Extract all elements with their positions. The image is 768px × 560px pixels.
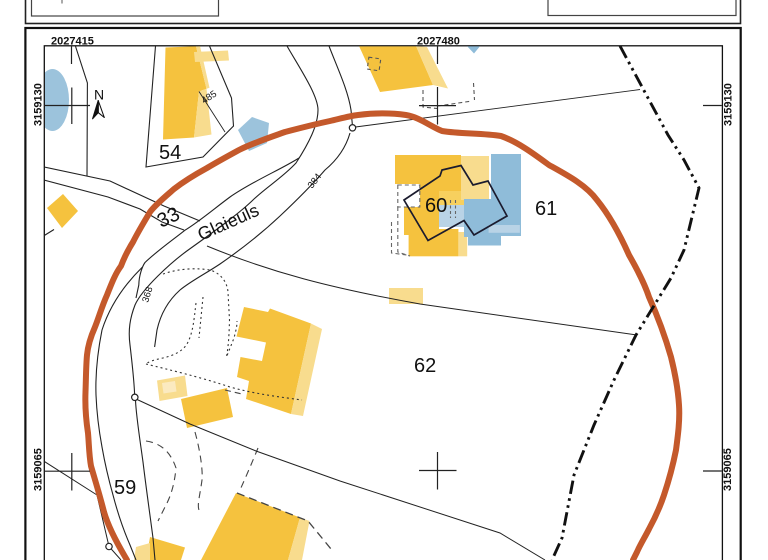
svg-text:3159065: 3159065 — [722, 448, 734, 491]
svg-text:62: 62 — [414, 355, 436, 377]
svg-text:2027480: 2027480 — [417, 36, 460, 48]
svg-text:2027415: 2027415 — [51, 36, 94, 48]
svg-text:60: 60 — [425, 195, 447, 217]
svg-text:3159130: 3159130 — [33, 83, 45, 126]
svg-text:3159065: 3159065 — [33, 448, 45, 491]
svg-text:N: N — [94, 87, 104, 103]
svg-text:3159130: 3159130 — [723, 83, 735, 126]
svg-text:59: 59 — [114, 477, 136, 499]
svg-text:54: 54 — [159, 142, 181, 164]
svg-text:61: 61 — [535, 198, 557, 220]
